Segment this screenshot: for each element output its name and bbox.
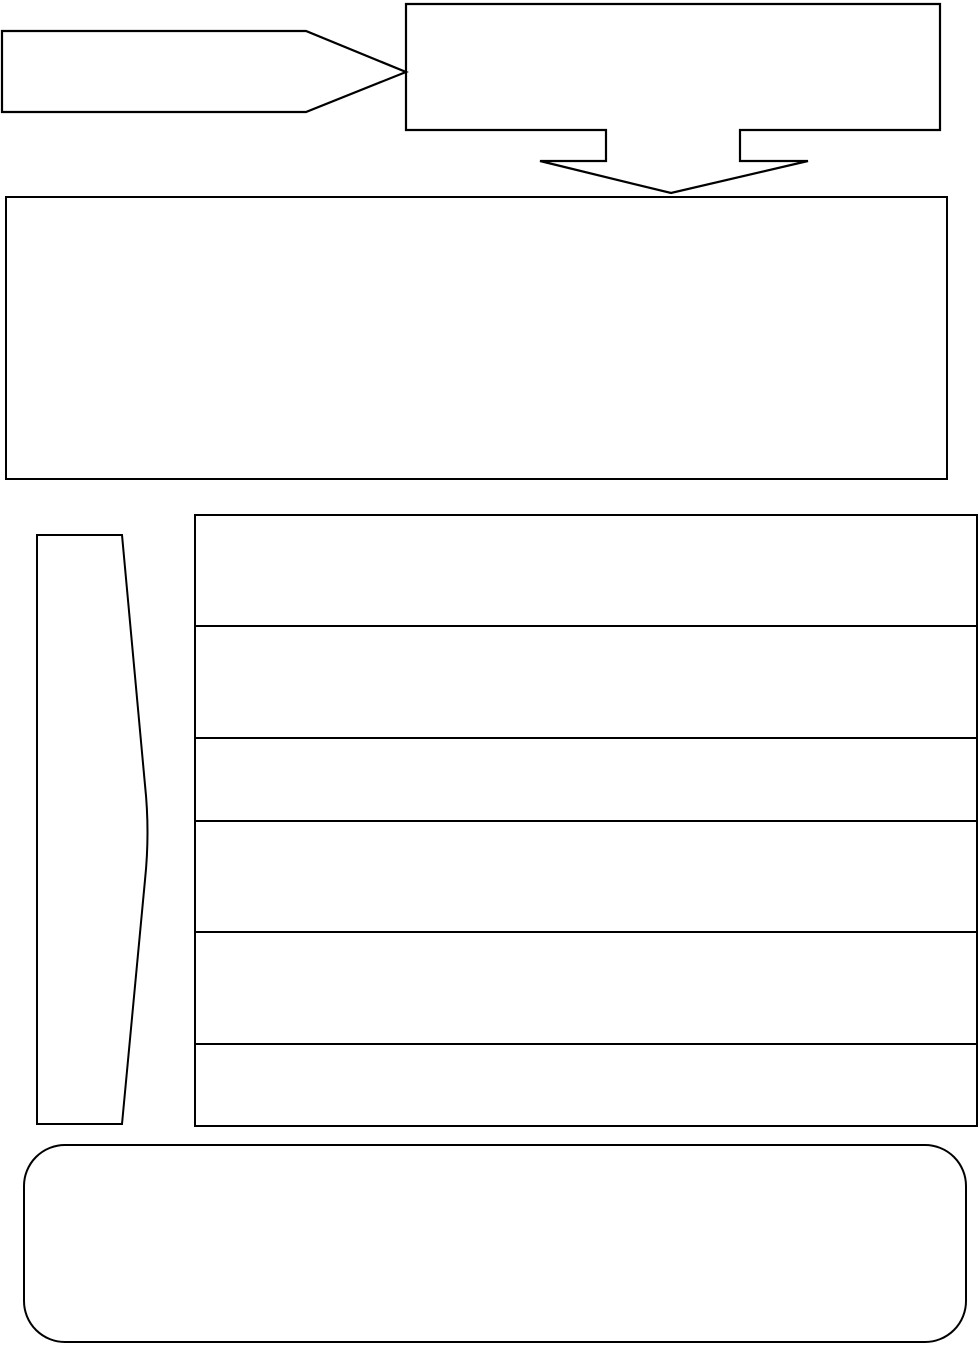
- table-row: [196, 822, 976, 933]
- description-box: [5, 196, 948, 480]
- table-row: [196, 739, 976, 822]
- table-row: [196, 627, 976, 739]
- diagram-page: [0, 0, 980, 1348]
- pentagon-arrow-shape: [2, 31, 406, 112]
- table-row: [196, 516, 976, 627]
- vertical-brace-shape: [37, 535, 148, 1124]
- table-row: [196, 1045, 976, 1125]
- table-row: [196, 933, 976, 1045]
- footer-rounded-box: [23, 1144, 967, 1343]
- header-box-with-merge-arrow-shape: [406, 4, 940, 193]
- rows-table: [194, 514, 978, 1127]
